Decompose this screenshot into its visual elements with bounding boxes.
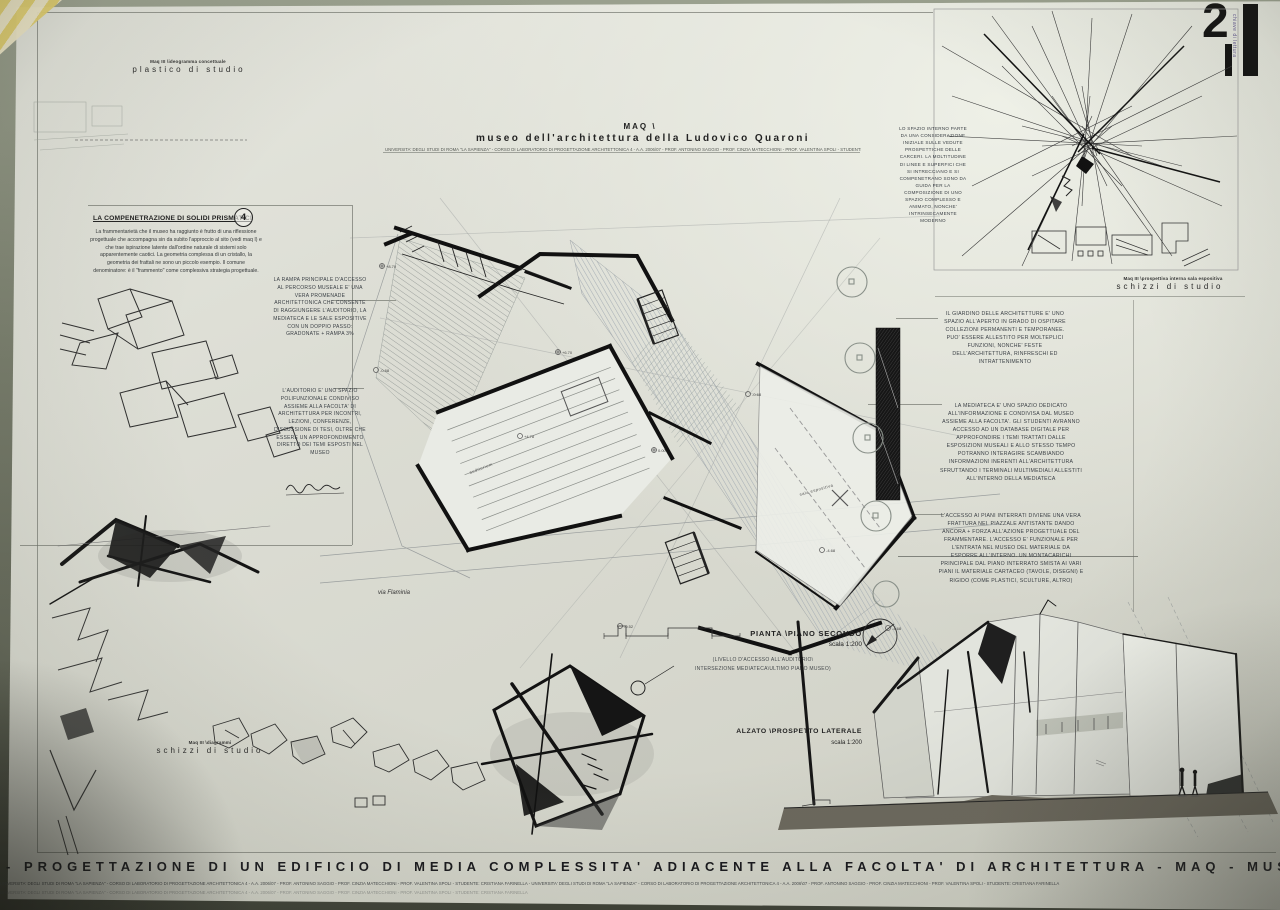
bottom-banner-title: - PROGETTAZIONE DI UN EDIFICIO DI MEDIA … (6, 859, 1280, 874)
mini-plan-fragments (1032, 223, 1210, 266)
bottom-credits-line-2: UNIVERSITA' DEGLI STUDI DI ROMA "LA SAPI… (0, 890, 1280, 895)
ideogram-sketch-cluster (60, 265, 300, 485)
credits-line: UNIVERSITA' DEGLI STUDI DI ROMA "LA SAPI… (385, 147, 861, 152)
svg-text:+4.78: +4.78 (524, 434, 535, 439)
dark-sketch-cluster (452, 644, 687, 859)
frame-line-top (37, 12, 933, 13)
scale-bar (600, 612, 750, 648)
diagram-series-caption: Maq III \diagrammi (150, 740, 270, 745)
diagram-caption: schizzi di studio (126, 746, 294, 755)
scribble-column (38, 600, 223, 855)
elevation-scale: scala 1:200 (712, 740, 862, 746)
radial-sketch-bold (984, 34, 1220, 250)
circled-marker (631, 681, 645, 695)
sketch-blob (1050, 196, 1062, 212)
svg-text:+6.70: +6.70 (562, 350, 573, 355)
elevation-title: ALZATO \PROSPETTO LATERALE (712, 728, 862, 735)
poster-photo: Maq III \ideogramma concettuale plastico… (0, 0, 1280, 910)
faint-plan-sketch (28, 92, 143, 170)
credits-text: UNIVERSITA' DEGLI STUDI DI ROMA "LA SAPI… (531, 881, 1059, 886)
model-series-caption: Maq III \ideogramma concettuale (112, 59, 264, 64)
svg-text:-0.68: -0.68 (380, 368, 390, 373)
sketch-series-caption: Maq III \prospettiva interna sala esposi… (1100, 276, 1246, 281)
left-panel-box-top (88, 205, 352, 206)
elevation-drawing (778, 592, 1280, 860)
sketch-stair-zigzag (1062, 176, 1072, 196)
maquette-number-badge: 4 (234, 208, 253, 227)
credits-text: UNIVERSITA' DEGLI STUDI DI ROMA "LA SAPI… (0, 890, 528, 895)
dark-hatched-strip (876, 328, 900, 500)
street-label: via Flaminia (378, 590, 410, 596)
corner-bar (1243, 4, 1258, 76)
page-title: museo dell'architettura della Ludovico Q… (420, 133, 866, 144)
svg-text:-0.68: -0.68 (752, 392, 762, 397)
svg-text:+8.70: +8.70 (386, 264, 397, 269)
concept-paragraph-title: LA COMPENETRAZIONE DI SOLIDI PRISMATICI (93, 215, 252, 222)
svg-text:-4.68: -4.68 (826, 548, 836, 553)
right-column-rule (1133, 300, 1134, 612)
credits-text: UNIVERSITA' DEGLI STUDI DI ROMA "LA SAPI… (0, 881, 528, 886)
title-rule (383, 152, 860, 153)
charcoal-sketch-cluster (50, 486, 290, 616)
elevation-ground (778, 792, 1278, 830)
sketch-blob (1076, 156, 1094, 174)
model-caption: plastico di studio (100, 65, 278, 74)
svg-text:0.00: 0.00 (658, 448, 667, 453)
sketch-caption: schizzi di studio (1094, 282, 1246, 291)
bottom-credits-line: UNIVERSITA' DEGLI STUDI DI ROMA "LA SAPI… (0, 881, 1280, 886)
project-acronym: MAQ \ (560, 122, 720, 131)
